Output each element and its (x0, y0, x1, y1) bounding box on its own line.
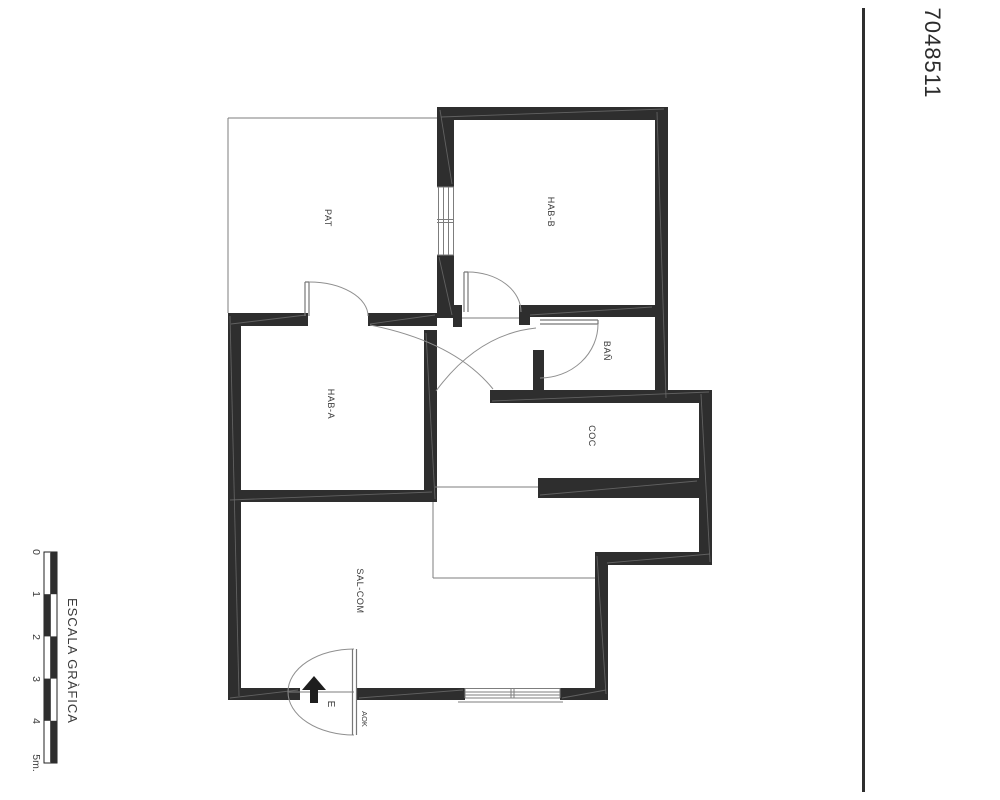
wall-segment (437, 107, 454, 187)
arrow-shaft (310, 690, 318, 703)
doors-layer (288, 272, 598, 735)
entrance-frame (353, 649, 357, 735)
floor-plan-drawing: E AOK PAT HAB-B BAÑ HAB-A COC SAL-COM 0 … (0, 0, 1000, 800)
scale-bar-ticks: 0 1 2 3 4 5m. (30, 549, 42, 772)
entrance-arrow-icon (302, 676, 326, 703)
room-label-pat: PAT (323, 209, 333, 227)
scale-tick-label: 1 (30, 591, 42, 597)
entrance-marker: E AOK (302, 676, 369, 727)
scale-bar-check (51, 552, 58, 594)
room-label-habb: HAB-B (546, 197, 556, 228)
scale-bar: 0 1 2 3 4 5m. ESCALA GRÀFICA (30, 549, 80, 772)
hall-door-arcs (370, 325, 536, 391)
wall-segment (437, 107, 668, 120)
room-label-salcom: SAL-COM (355, 568, 365, 613)
wall-segment (453, 305, 462, 327)
door-pat (305, 282, 368, 316)
door-leaf (540, 320, 598, 324)
drawing-number: 7048511 (920, 7, 945, 98)
scale-tick-label: 5m. (30, 754, 42, 772)
walls-layer (228, 107, 712, 700)
door-ban (540, 320, 598, 378)
door-leaf (305, 282, 309, 316)
scale-tick-label: 4 (30, 718, 42, 724)
wall-hatch-lines (230, 109, 710, 698)
window-salcom (465, 688, 560, 698)
scale-tick-label: 3 (30, 676, 42, 682)
door-habb (464, 272, 521, 312)
sheet-border-line (862, 8, 865, 792)
scale-bar-check (51, 636, 58, 678)
room-label-coc: COC (587, 425, 597, 447)
entrance-label: E (325, 701, 336, 708)
room-labels: PAT HAB-B BAÑ HAB-A COC SAL-COM (323, 197, 612, 614)
scale-bar-title: ESCALA GRÀFICA (65, 598, 80, 724)
door-swing-arc (468, 272, 521, 312)
entrance-door (288, 649, 357, 735)
door-swing-arc (309, 282, 368, 316)
floor-plan-sheet: E AOK PAT HAB-B BAÑ HAB-A COC SAL-COM 0 … (0, 0, 1000, 800)
scale-tick-label: 2 (30, 634, 42, 640)
entrance-adjacent-label: AOK (360, 711, 369, 727)
thin-lines-layer (228, 118, 595, 702)
window-pat-habb (437, 187, 454, 255)
scale-tick-label: 0 (30, 549, 42, 555)
door-leaf (464, 272, 468, 312)
arrow-head (302, 676, 326, 690)
room-label-ban: BAÑ (602, 341, 612, 361)
room-label-haba: HAB-A (326, 389, 336, 420)
door-swing-arc (540, 324, 598, 378)
scale-bar-check (44, 679, 51, 721)
wall-segment (533, 350, 544, 395)
windows-layer (437, 187, 560, 698)
scale-bar-check (44, 594, 51, 636)
scale-bar-check (51, 721, 58, 763)
